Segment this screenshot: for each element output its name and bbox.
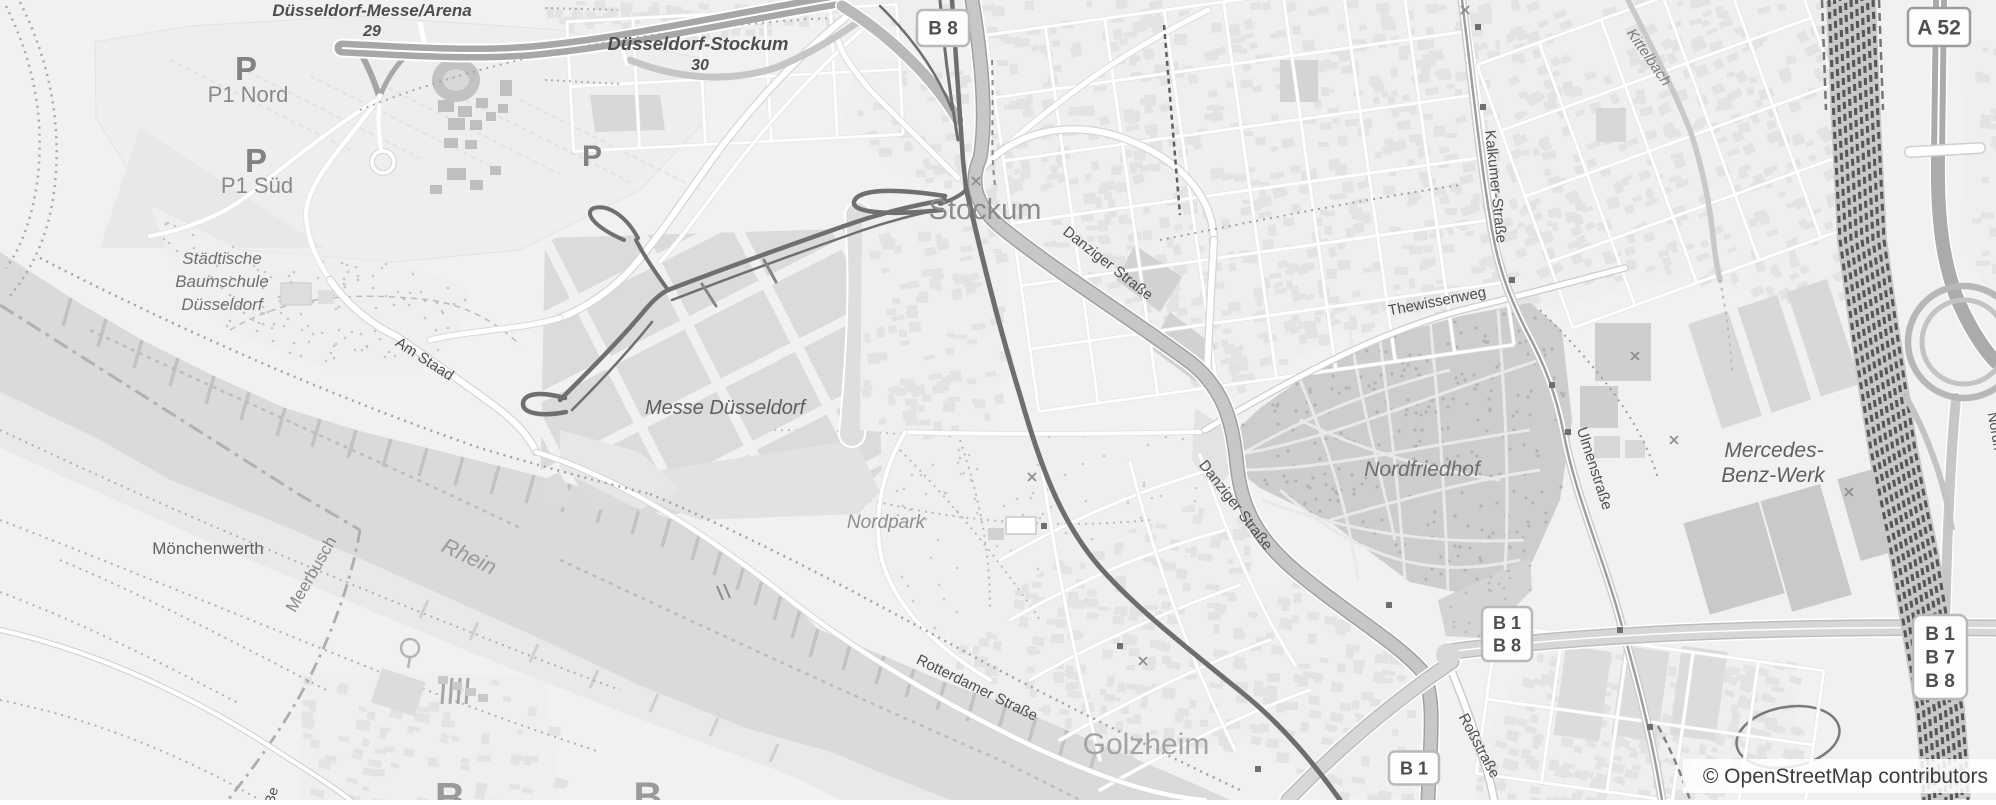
svg-text:B 8: B 8 [1493, 635, 1521, 655]
svg-text:B: B [634, 775, 663, 800]
svg-text:Städtische: Städtische [182, 249, 261, 268]
svg-text:B 1: B 1 [1493, 613, 1521, 633]
svg-text:P: P [582, 140, 602, 173]
svg-text:Messe Düsseldorf: Messe Düsseldorf [645, 397, 808, 419]
svg-text:30: 30 [691, 57, 709, 74]
svg-text:A 52: A 52 [1917, 16, 1961, 39]
svg-text:Baumschule: Baumschule [175, 272, 269, 291]
svg-text:P1 Nord: P1 Nord [208, 82, 289, 107]
svg-text:B 7: B 7 [1925, 648, 1955, 669]
svg-text:P1 Süd: P1 Süd [221, 173, 293, 198]
svg-text:Düsseldorf-Messe/Arena: Düsseldorf-Messe/Arena [272, 1, 471, 20]
svg-text:B 8: B 8 [928, 19, 958, 40]
svg-text:Golzheim: Golzheim [1083, 728, 1210, 761]
svg-text:B 8: B 8 [1925, 671, 1955, 692]
svg-text:Düsseldorf: Düsseldorf [181, 295, 265, 314]
svg-text:© OpenStreetMap contributors: © OpenStreetMap contributors [1703, 765, 1988, 788]
svg-text:Düsseldorf-Stockum: Düsseldorf-Stockum [608, 33, 789, 54]
svg-text:Mönchenwerth: Mönchenwerth [152, 539, 264, 558]
svg-text:Nordfriedhof: Nordfriedhof [1364, 458, 1482, 481]
svg-text:B 1: B 1 [1925, 624, 1955, 645]
svg-text:29: 29 [362, 23, 381, 40]
svg-text:Mercedes-: Mercedes- [1724, 439, 1823, 462]
svg-text:Stockum: Stockum [929, 194, 1042, 226]
svg-text:Nordpark: Nordpark [847, 512, 927, 533]
svg-text:B: B [435, 774, 465, 800]
svg-text:B 1: B 1 [1400, 758, 1428, 778]
svg-text:Benz-Werk: Benz-Werk [1721, 464, 1826, 487]
